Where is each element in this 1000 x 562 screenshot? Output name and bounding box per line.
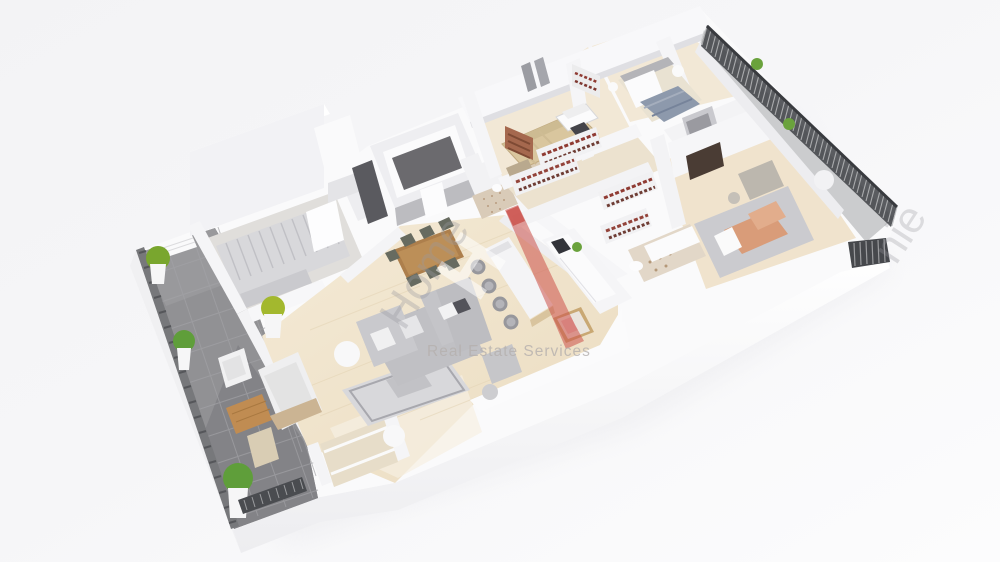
svg-text:Real Estate Services: Real Estate Services xyxy=(427,343,591,360)
